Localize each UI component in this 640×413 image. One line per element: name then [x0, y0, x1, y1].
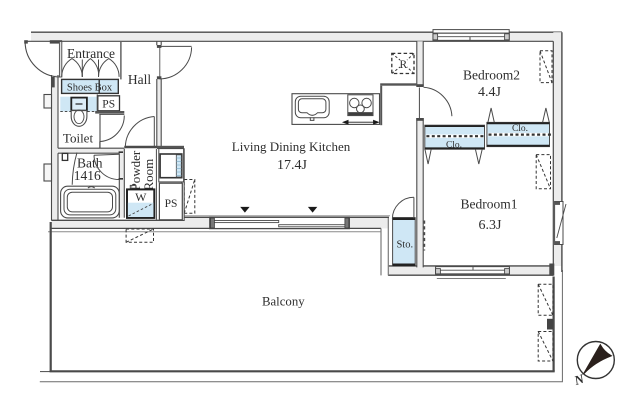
svg-text:Sto.: Sto. [396, 240, 413, 251]
svg-text:17.4J: 17.4J [277, 158, 308, 173]
svg-text:Clo.: Clo. [446, 140, 462, 150]
svg-text:Shoes Box: Shoes Box [67, 82, 113, 93]
svg-text:1416: 1416 [74, 168, 101, 183]
svg-text:Clo.: Clo. [512, 124, 528, 134]
svg-text:6.3J: 6.3J [479, 218, 503, 233]
svg-text:Balcony: Balcony [262, 295, 305, 309]
svg-text:Bedroom1: Bedroom1 [461, 197, 518, 212]
svg-text:W: W [135, 190, 147, 204]
svg-text:Living Dining Kitchen: Living Dining Kitchen [232, 139, 351, 154]
svg-text:Room: Room [141, 159, 156, 191]
svg-text:PS: PS [102, 99, 115, 111]
svg-text:PS: PS [165, 198, 178, 210]
svg-text:Toilet: Toilet [63, 130, 94, 145]
svg-text:Hall: Hall [128, 72, 151, 87]
svg-text:R: R [399, 59, 407, 71]
svg-text:4.4J: 4.4J [478, 85, 502, 100]
svg-text:Bedroom2: Bedroom2 [463, 67, 520, 82]
